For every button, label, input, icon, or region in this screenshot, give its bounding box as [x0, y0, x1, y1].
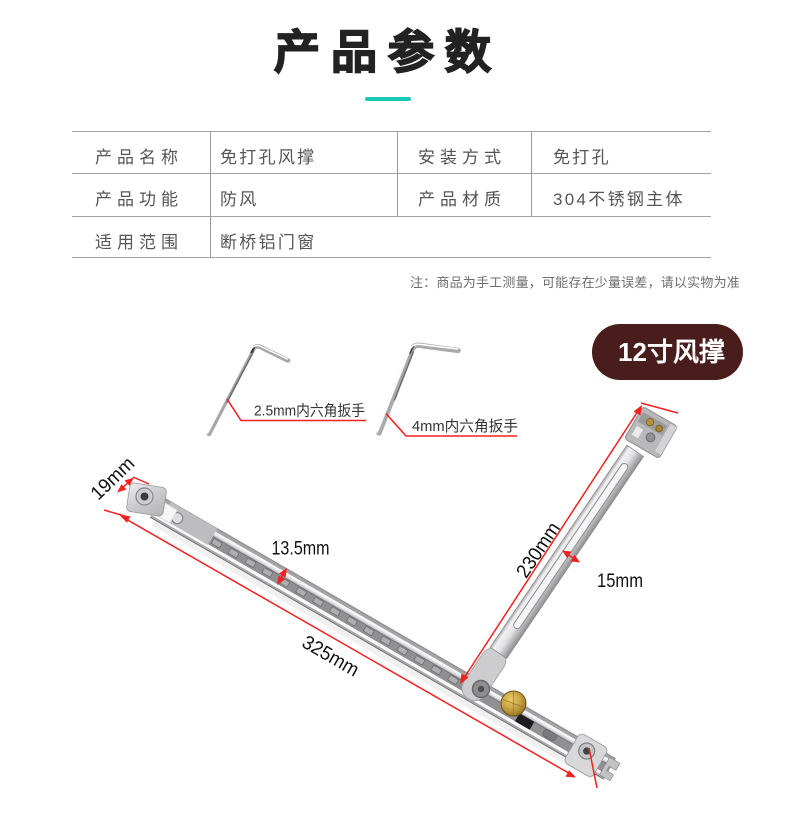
svg-text:4mm内六角扳手: 4mm内六角扳手 [412, 418, 518, 435]
svg-text:2.5mm内六角扳手: 2.5mm内六角扳手 [254, 403, 365, 420]
svg-text:13.5mm: 13.5mm [272, 538, 330, 560]
svg-text:15mm: 15mm [597, 570, 643, 592]
